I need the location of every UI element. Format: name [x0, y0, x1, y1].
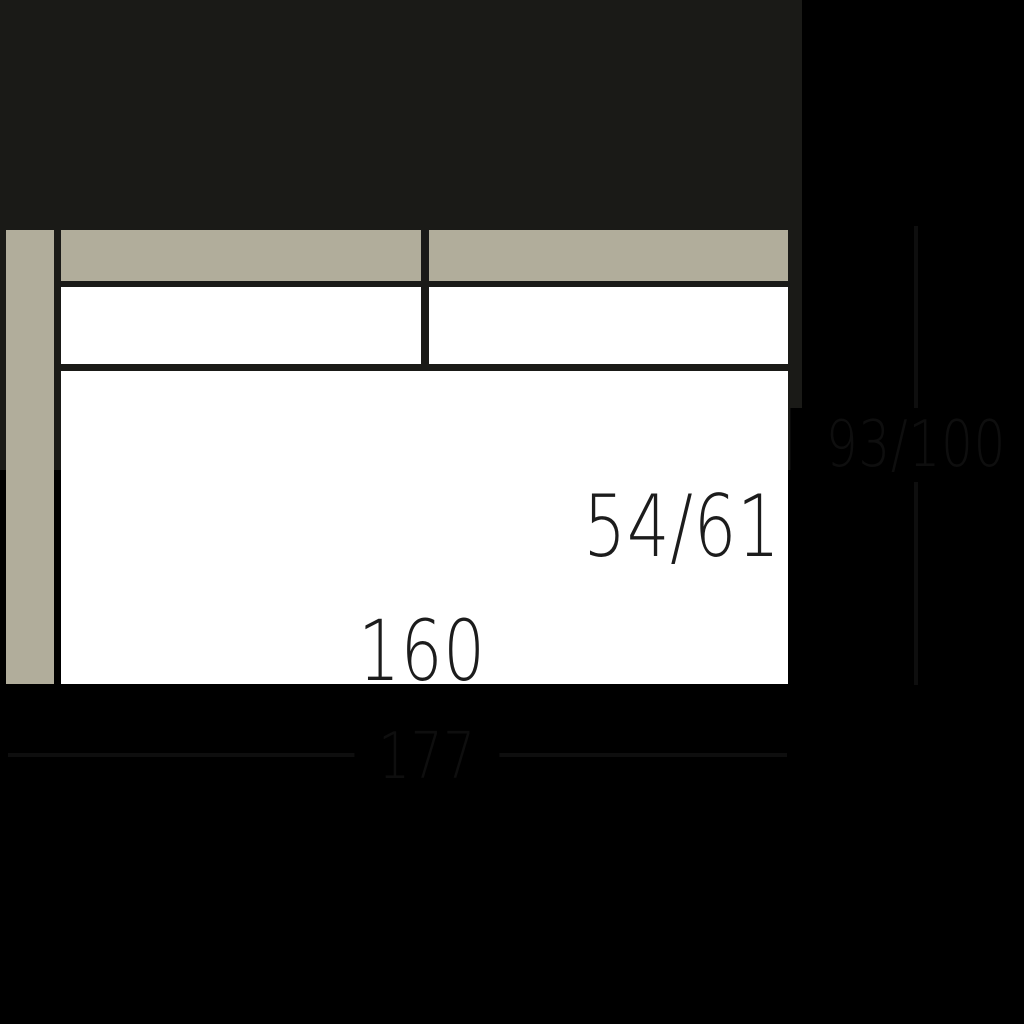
seat-width-value: 160	[358, 602, 485, 700]
overall-width-value: 177	[378, 720, 476, 794]
seat-width-label: 160	[340, 602, 503, 700]
overall-depth-value: 93/100	[826, 408, 1006, 482]
backrest-right	[429, 230, 788, 281]
furniture-diagram: 54/61 160 177 93/100	[0, 0, 1024, 1024]
seat-depth-value: 54/61	[583, 477, 780, 577]
back-cushion-left	[61, 287, 421, 364]
seat-depth-label: 54/61	[556, 477, 809, 577]
backrest-left	[61, 230, 421, 281]
overall-depth-label: 93/100	[790, 408, 1024, 482]
armrest-left	[6, 230, 54, 684]
overall-width-label: 177	[354, 720, 499, 794]
back-cushion-right	[429, 287, 788, 364]
